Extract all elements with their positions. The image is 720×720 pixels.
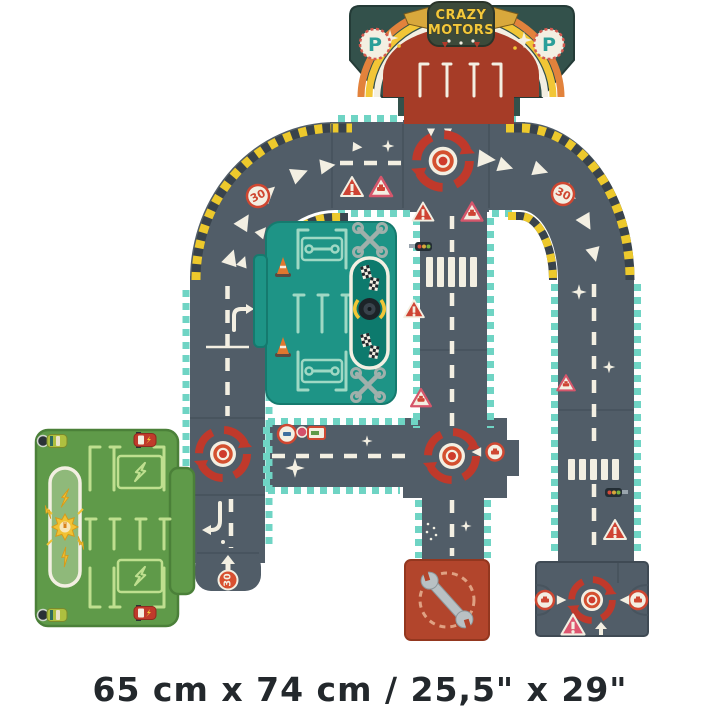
toy-car-icon bbox=[134, 605, 156, 621]
svg-text:P: P bbox=[368, 34, 382, 56]
toy-car-icon bbox=[38, 609, 68, 622]
tire-icon bbox=[355, 298, 385, 320]
parking-garage-piece: P P CRAZY MOTORS bbox=[350, 2, 574, 124]
brand-logo-line1: CRAZY bbox=[436, 8, 487, 23]
playmat-illustration: 30 30 30 bbox=[0, 0, 720, 720]
sparkle bbox=[513, 46, 517, 50]
race-capsule bbox=[351, 258, 388, 368]
toy-car-icon bbox=[38, 435, 68, 448]
svg-text:30: 30 bbox=[223, 573, 234, 587]
speed-limit-sign: 30 bbox=[219, 571, 238, 590]
traffic-light-icon bbox=[409, 242, 432, 251]
product-image: 30 30 30 bbox=[0, 0, 720, 720]
parking-sign: P bbox=[534, 29, 564, 59]
svg-text:P: P bbox=[542, 34, 556, 56]
toy-car-icon bbox=[134, 432, 156, 448]
repair-garage-piece bbox=[254, 222, 396, 404]
parking-sign: P bbox=[360, 29, 390, 59]
brand-logo-line2: MOTORS bbox=[428, 23, 494, 38]
charging-station-piece bbox=[36, 430, 194, 626]
dimensions-caption: 65 cm x 74 cm / 25,5" x 29" bbox=[0, 670, 720, 709]
sparkle bbox=[397, 44, 401, 48]
charging-capsule bbox=[42, 468, 87, 586]
service-entry-piece bbox=[405, 560, 489, 640]
